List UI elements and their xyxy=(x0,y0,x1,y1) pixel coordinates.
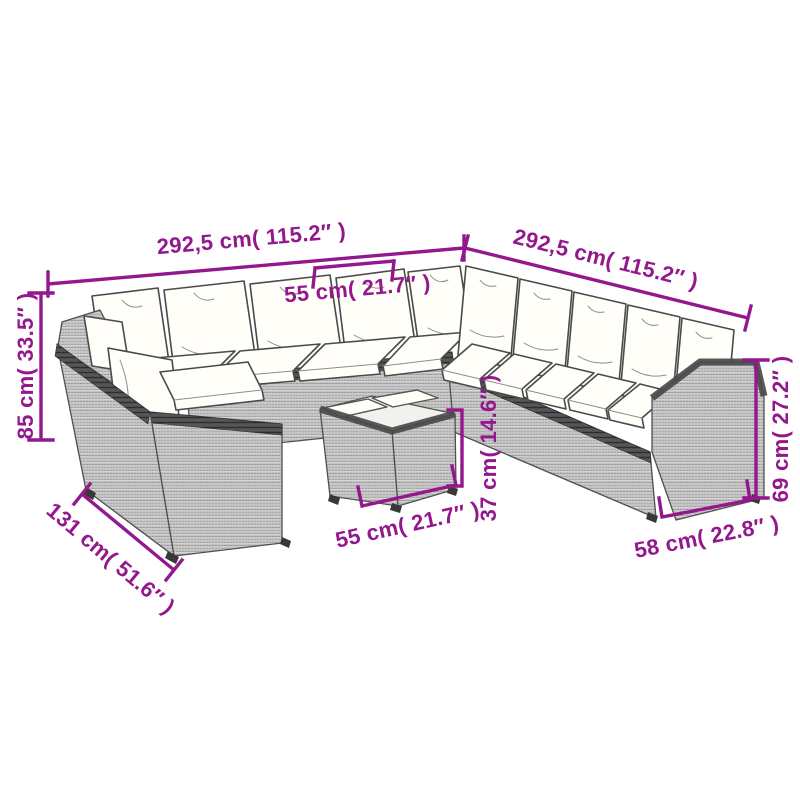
dim-label-table-width: 55 cm( 21.7″ ) xyxy=(333,497,482,553)
furniture-illustration: 292,5 cm( 115.2″ ) 292,5 cm( 115.2″ ) 55… xyxy=(0,0,800,800)
dim-label-table-height: 37 cm( 14.6″ ) xyxy=(476,375,501,522)
dim-label-backrest-height: 85 cm( 33.5″ ) xyxy=(13,293,38,440)
dim-label-armrest-height: 69 cm( 27.2″ ) xyxy=(768,356,793,503)
dim-label-total-width-left: 292,5 cm( 115.2″ ) xyxy=(156,218,347,259)
product-dimension-diagram: 292,5 cm( 115.2″ ) 292,5 cm( 115.2″ ) 55… xyxy=(0,0,800,800)
